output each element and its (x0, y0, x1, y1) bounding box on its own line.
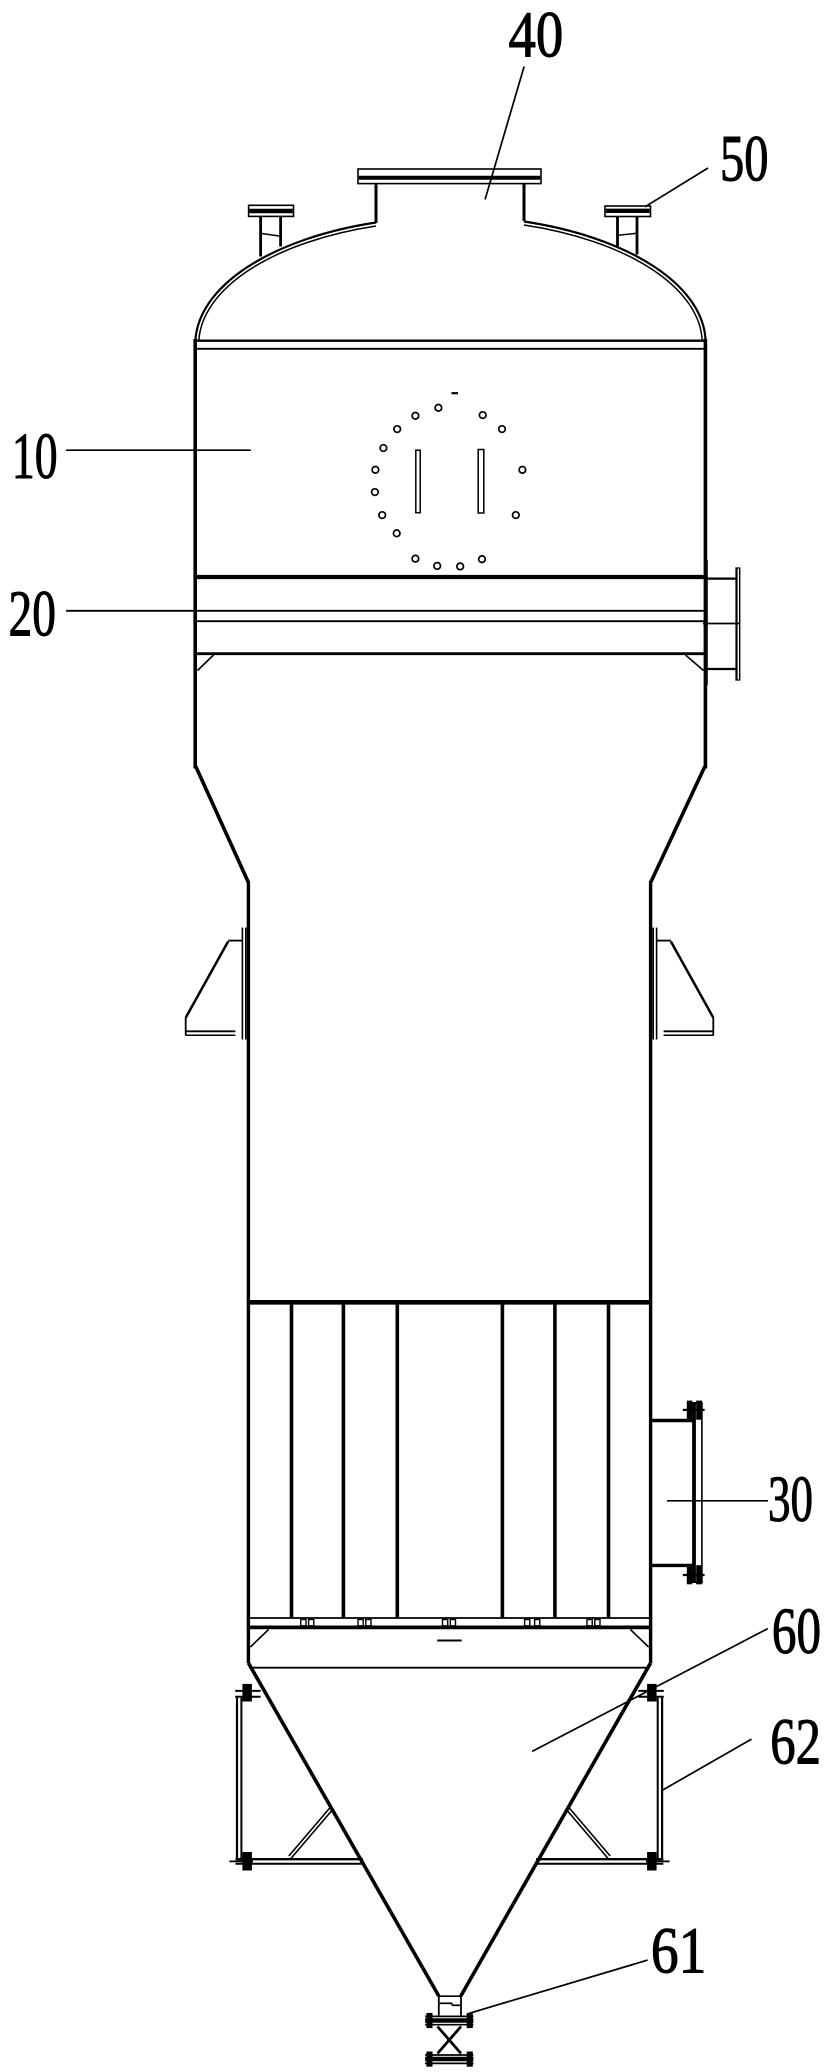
svg-text:40: 40 (509, 0, 564, 71)
svg-text:20: 20 (9, 578, 56, 651)
svg-text:61: 61 (651, 1914, 707, 1987)
svg-text:10: 10 (12, 420, 58, 493)
svg-text:30: 30 (768, 1463, 813, 1536)
svg-text:50: 50 (720, 123, 769, 196)
svg-text:60: 60 (772, 1595, 821, 1668)
svg-text:62: 62 (770, 1706, 821, 1779)
